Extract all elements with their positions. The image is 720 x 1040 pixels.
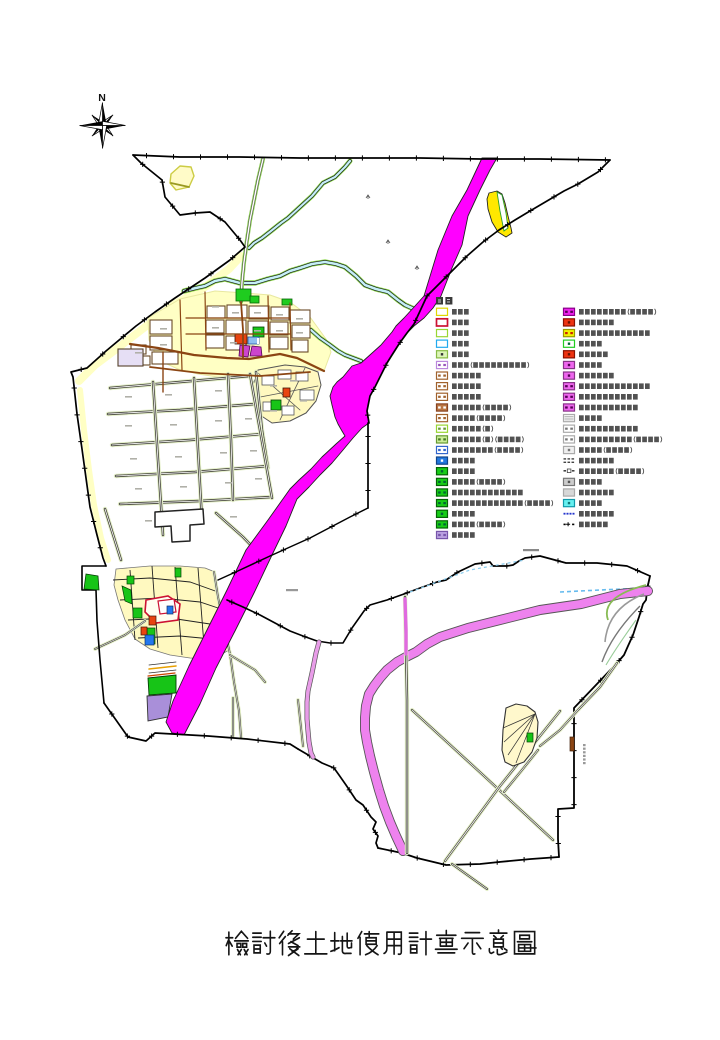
svg-text:N: N — [98, 92, 106, 104]
